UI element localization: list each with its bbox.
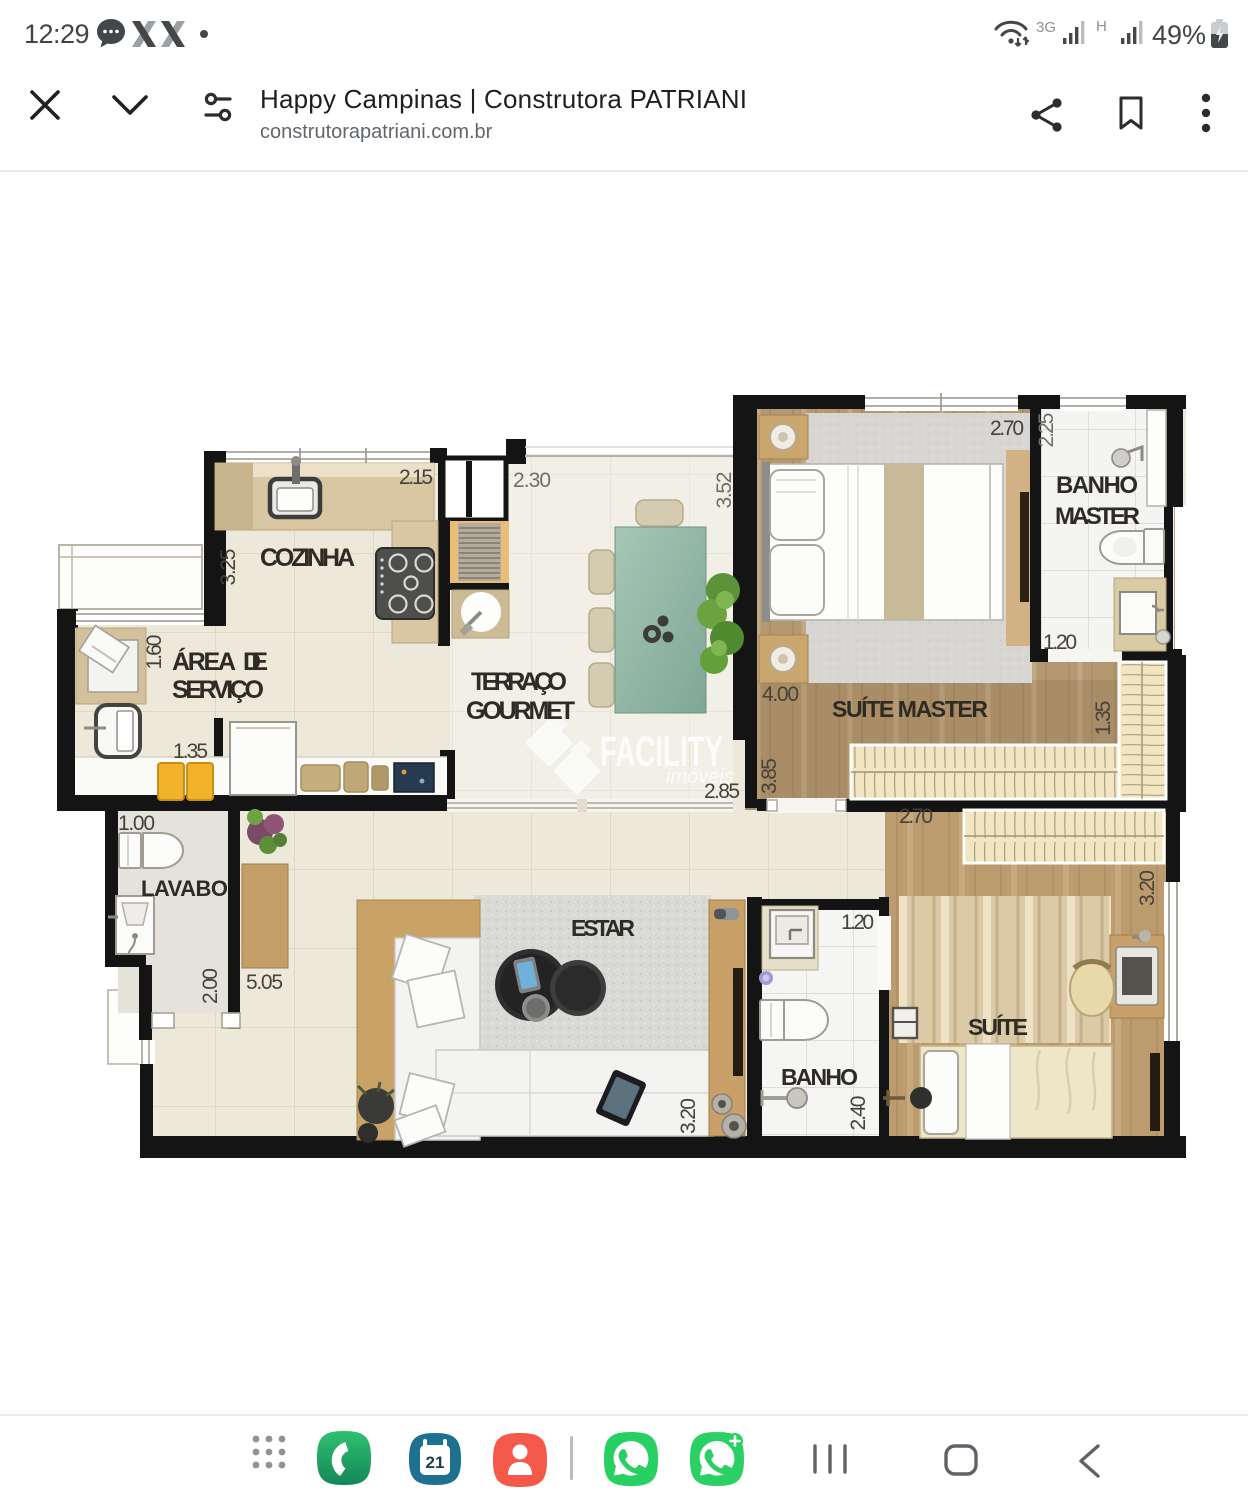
svg-text:2.85: 2.85	[704, 780, 740, 803]
svg-text:2.70: 2.70	[899, 805, 933, 828]
svg-text:2.40: 2.40	[847, 1096, 870, 1131]
svg-text:BANHO: BANHO	[1056, 472, 1138, 499]
svg-text:COZINHA: COZINHA	[260, 544, 355, 572]
svg-text:SUÍTE MASTER: SUÍTE MASTER	[832, 695, 988, 722]
svg-text:1.60: 1.60	[143, 635, 166, 670]
svg-text:2.25: 2.25	[1035, 413, 1058, 448]
svg-text:DE: DE	[243, 648, 268, 676]
svg-text:MASTER: MASTER	[1055, 503, 1140, 530]
svg-text:ÁREA: ÁREA	[172, 647, 236, 676]
svg-text:2.70: 2.70	[990, 417, 1024, 440]
svg-text:1.35: 1.35	[1092, 701, 1115, 736]
svg-text:2.15: 2.15	[399, 466, 433, 489]
svg-text:4.00: 4.00	[762, 683, 799, 706]
svg-text:2.30: 2.30	[513, 469, 551, 492]
svg-text:2.00: 2.00	[199, 968, 222, 1004]
svg-text:21: 21	[426, 1453, 445, 1472]
svg-text:ESTAR: ESTAR	[571, 915, 635, 941]
svg-text:SERVIÇO: SERVIÇO	[172, 676, 264, 704]
svg-text:GOURMET: GOURMET	[466, 697, 575, 725]
svg-text:3.85: 3.85	[758, 758, 781, 794]
svg-text:3.20: 3.20	[677, 1098, 700, 1134]
svg-text:BANHO: BANHO	[781, 1064, 858, 1090]
svg-text:LAVABO: LAVABO	[141, 876, 228, 901]
svg-text:1.35: 1.35	[173, 740, 208, 763]
svg-text:1.20: 1.20	[1043, 631, 1077, 654]
svg-text:3.20: 3.20	[1136, 870, 1159, 906]
svg-text:5.05: 5.05	[246, 971, 283, 994]
svg-text:1.20: 1.20	[841, 911, 874, 934]
svg-text:3.52: 3.52	[713, 472, 736, 509]
svg-text:3.25: 3.25	[217, 549, 240, 586]
svg-text:1.00: 1.00	[118, 812, 155, 835]
svg-text:TERRAÇO: TERRAÇO	[471, 668, 567, 696]
svg-text:SUÍTE: SUÍTE	[968, 1013, 1028, 1040]
